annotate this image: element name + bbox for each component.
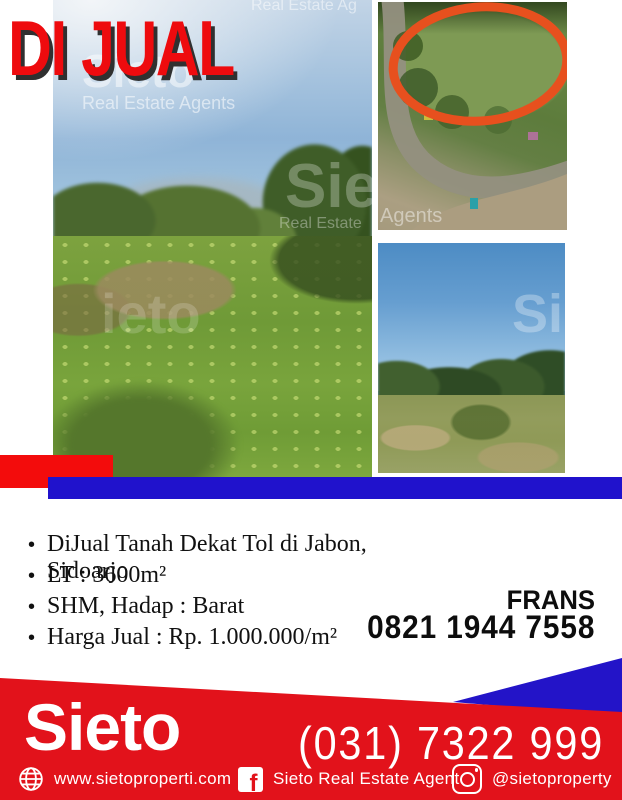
website-label: www.sietoproperti.com bbox=[54, 769, 231, 789]
listing-bullet-text: LT : 3600m² bbox=[47, 562, 166, 589]
watermark-brand: Si bbox=[512, 287, 563, 341]
flyer-page: Sieto Real Estate Agents Real Estate Ag … bbox=[0, 0, 622, 800]
footer: Sieto (031) 7322 999 www.sietoproperti.c… bbox=[0, 650, 622, 800]
listing-details: • DiJual Tanah Dekat Tol di Jabon, Sidoa… bbox=[28, 531, 388, 655]
plot-highlight-oval bbox=[388, 2, 567, 128]
watermark-text: Agents bbox=[380, 206, 442, 226]
photo-land-field: Si bbox=[378, 243, 565, 473]
bullet-marker: • bbox=[28, 627, 35, 650]
bullet-marker: • bbox=[28, 565, 35, 588]
photo-aerial-plot: Agents bbox=[378, 2, 567, 230]
brand-logo: Sieto bbox=[24, 694, 180, 760]
globe-icon bbox=[18, 766, 44, 792]
office-phone-number[interactable]: (031) 7322 999 bbox=[298, 720, 604, 766]
listing-bullet-text: Harga Jual : Rp. 1.000.000/m² bbox=[47, 624, 337, 651]
facebook-glyph: f bbox=[250, 772, 258, 792]
watermark-brand: ieto bbox=[101, 286, 201, 342]
instagram-label: @sietoproperty bbox=[492, 769, 612, 789]
instagram-dot bbox=[475, 768, 479, 772]
grass-field bbox=[378, 395, 565, 473]
aerial-overlay bbox=[378, 2, 567, 230]
divider-blue-bar bbox=[48, 477, 622, 499]
facebook-icon: f bbox=[238, 767, 263, 792]
listing-bullet-item: • DiJual Tanah Dekat Tol di Jabon, Sidoa… bbox=[28, 531, 388, 562]
facebook-link[interactable]: f Sieto Real Estate Agent bbox=[238, 764, 459, 794]
instagram-icon bbox=[452, 764, 482, 794]
website-link[interactable]: www.sietoproperti.com bbox=[18, 764, 231, 794]
instagram-lens bbox=[460, 772, 475, 787]
listing-bullet-text: SHM, Hadap : Barat bbox=[47, 593, 244, 620]
instagram-link[interactable]: @sietoproperty bbox=[452, 764, 612, 794]
listing-bullet-item: • SHM, Hadap : Barat bbox=[28, 593, 388, 624]
watermark-text: Real Estate Agents bbox=[82, 94, 235, 112]
bullet-marker: • bbox=[28, 596, 35, 619]
facebook-label: Sieto Real Estate Agent bbox=[273, 769, 459, 789]
for-sale-badge: DI JUAL bbox=[8, 9, 234, 87]
bullet-marker: • bbox=[28, 534, 35, 557]
watermark-text: Real Estate Ag bbox=[251, 0, 357, 14]
watermark-brand: Sie bbox=[285, 156, 372, 218]
agent-phone-number[interactable]: 0821 1944 7558 bbox=[367, 609, 595, 646]
watermark-text: Real Estate bbox=[279, 216, 362, 232]
